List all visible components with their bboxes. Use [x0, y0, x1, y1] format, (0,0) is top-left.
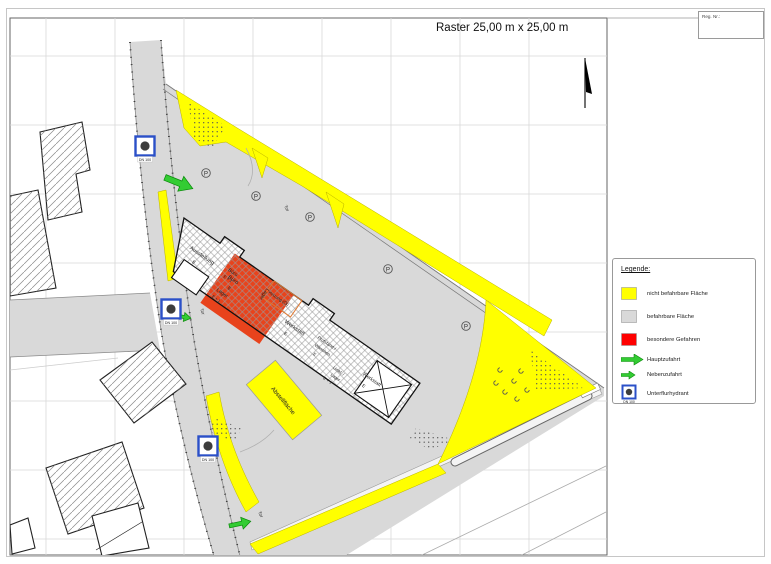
- hydrant-dn-label: DN 100: [202, 458, 214, 462]
- hydrant-icon: DN 100: [162, 300, 181, 326]
- page-title: Raster 25,00 m x 25,00 m: [436, 22, 568, 34]
- svg-text:P: P: [204, 170, 208, 177]
- reg-nr-label: Reg. Nr.:: [699, 12, 763, 19]
- legend-item-hydrant: DN 100 Unterflurhydrant: [621, 382, 755, 406]
- svg-text:P: P: [386, 266, 390, 273]
- legend-panel: Legende: nicht befahrbare Fläche befahrb…: [612, 258, 756, 404]
- legend-title: Legende:: [621, 266, 755, 273]
- legend-item-label: Nebenzufahrt: [647, 372, 682, 378]
- svg-text:P: P: [464, 323, 468, 330]
- legend-item-main-access: Hauptzufahrt: [621, 351, 755, 368]
- legend-item-label: Unterflurhydrant: [647, 391, 689, 397]
- legend-item-side-access: Nebenzufahrt: [621, 368, 755, 382]
- yellow-square-icon: [621, 287, 647, 300]
- hydrant-dn-label: DN 100: [623, 400, 635, 404]
- hydrant-icon: DN 100: [199, 437, 218, 463]
- legend-item-non-drivable: nicht befahrbare Fläche: [621, 282, 755, 305]
- legend-item-drivable: befahrbare Fläche: [621, 305, 755, 328]
- hydrant-icon: DN 100: [136, 137, 155, 163]
- plan-sheet: Ausstellung E Büro E Heizung (Öl) Büro E…: [0, 0, 771, 564]
- large-green-arrow-icon: [621, 354, 647, 366]
- hydrant-dn-label: DN 100: [139, 158, 151, 162]
- hydrant-legend-icon: DN 100: [621, 384, 647, 405]
- legend-item-label: Hauptzufahrt: [647, 357, 680, 363]
- small-green-arrow-icon: [621, 371, 647, 380]
- svg-text:P: P: [308, 214, 312, 221]
- legend-item-label: befahrbare Fläche: [647, 314, 694, 320]
- svg-text:P: P: [254, 193, 258, 200]
- legend-item-label: besondere Gefahren: [647, 337, 700, 343]
- side-street: [10, 293, 160, 357]
- red-square-icon: [621, 333, 647, 346]
- reg-nr-box: Reg. Nr.:: [698, 11, 764, 39]
- legend-item-label: nicht befahrbare Fläche: [647, 291, 708, 297]
- legend-item-danger: besondere Gefahren: [621, 328, 755, 351]
- gray-square-icon: [621, 310, 647, 323]
- hydrant-dn-label: DN 100: [165, 321, 177, 325]
